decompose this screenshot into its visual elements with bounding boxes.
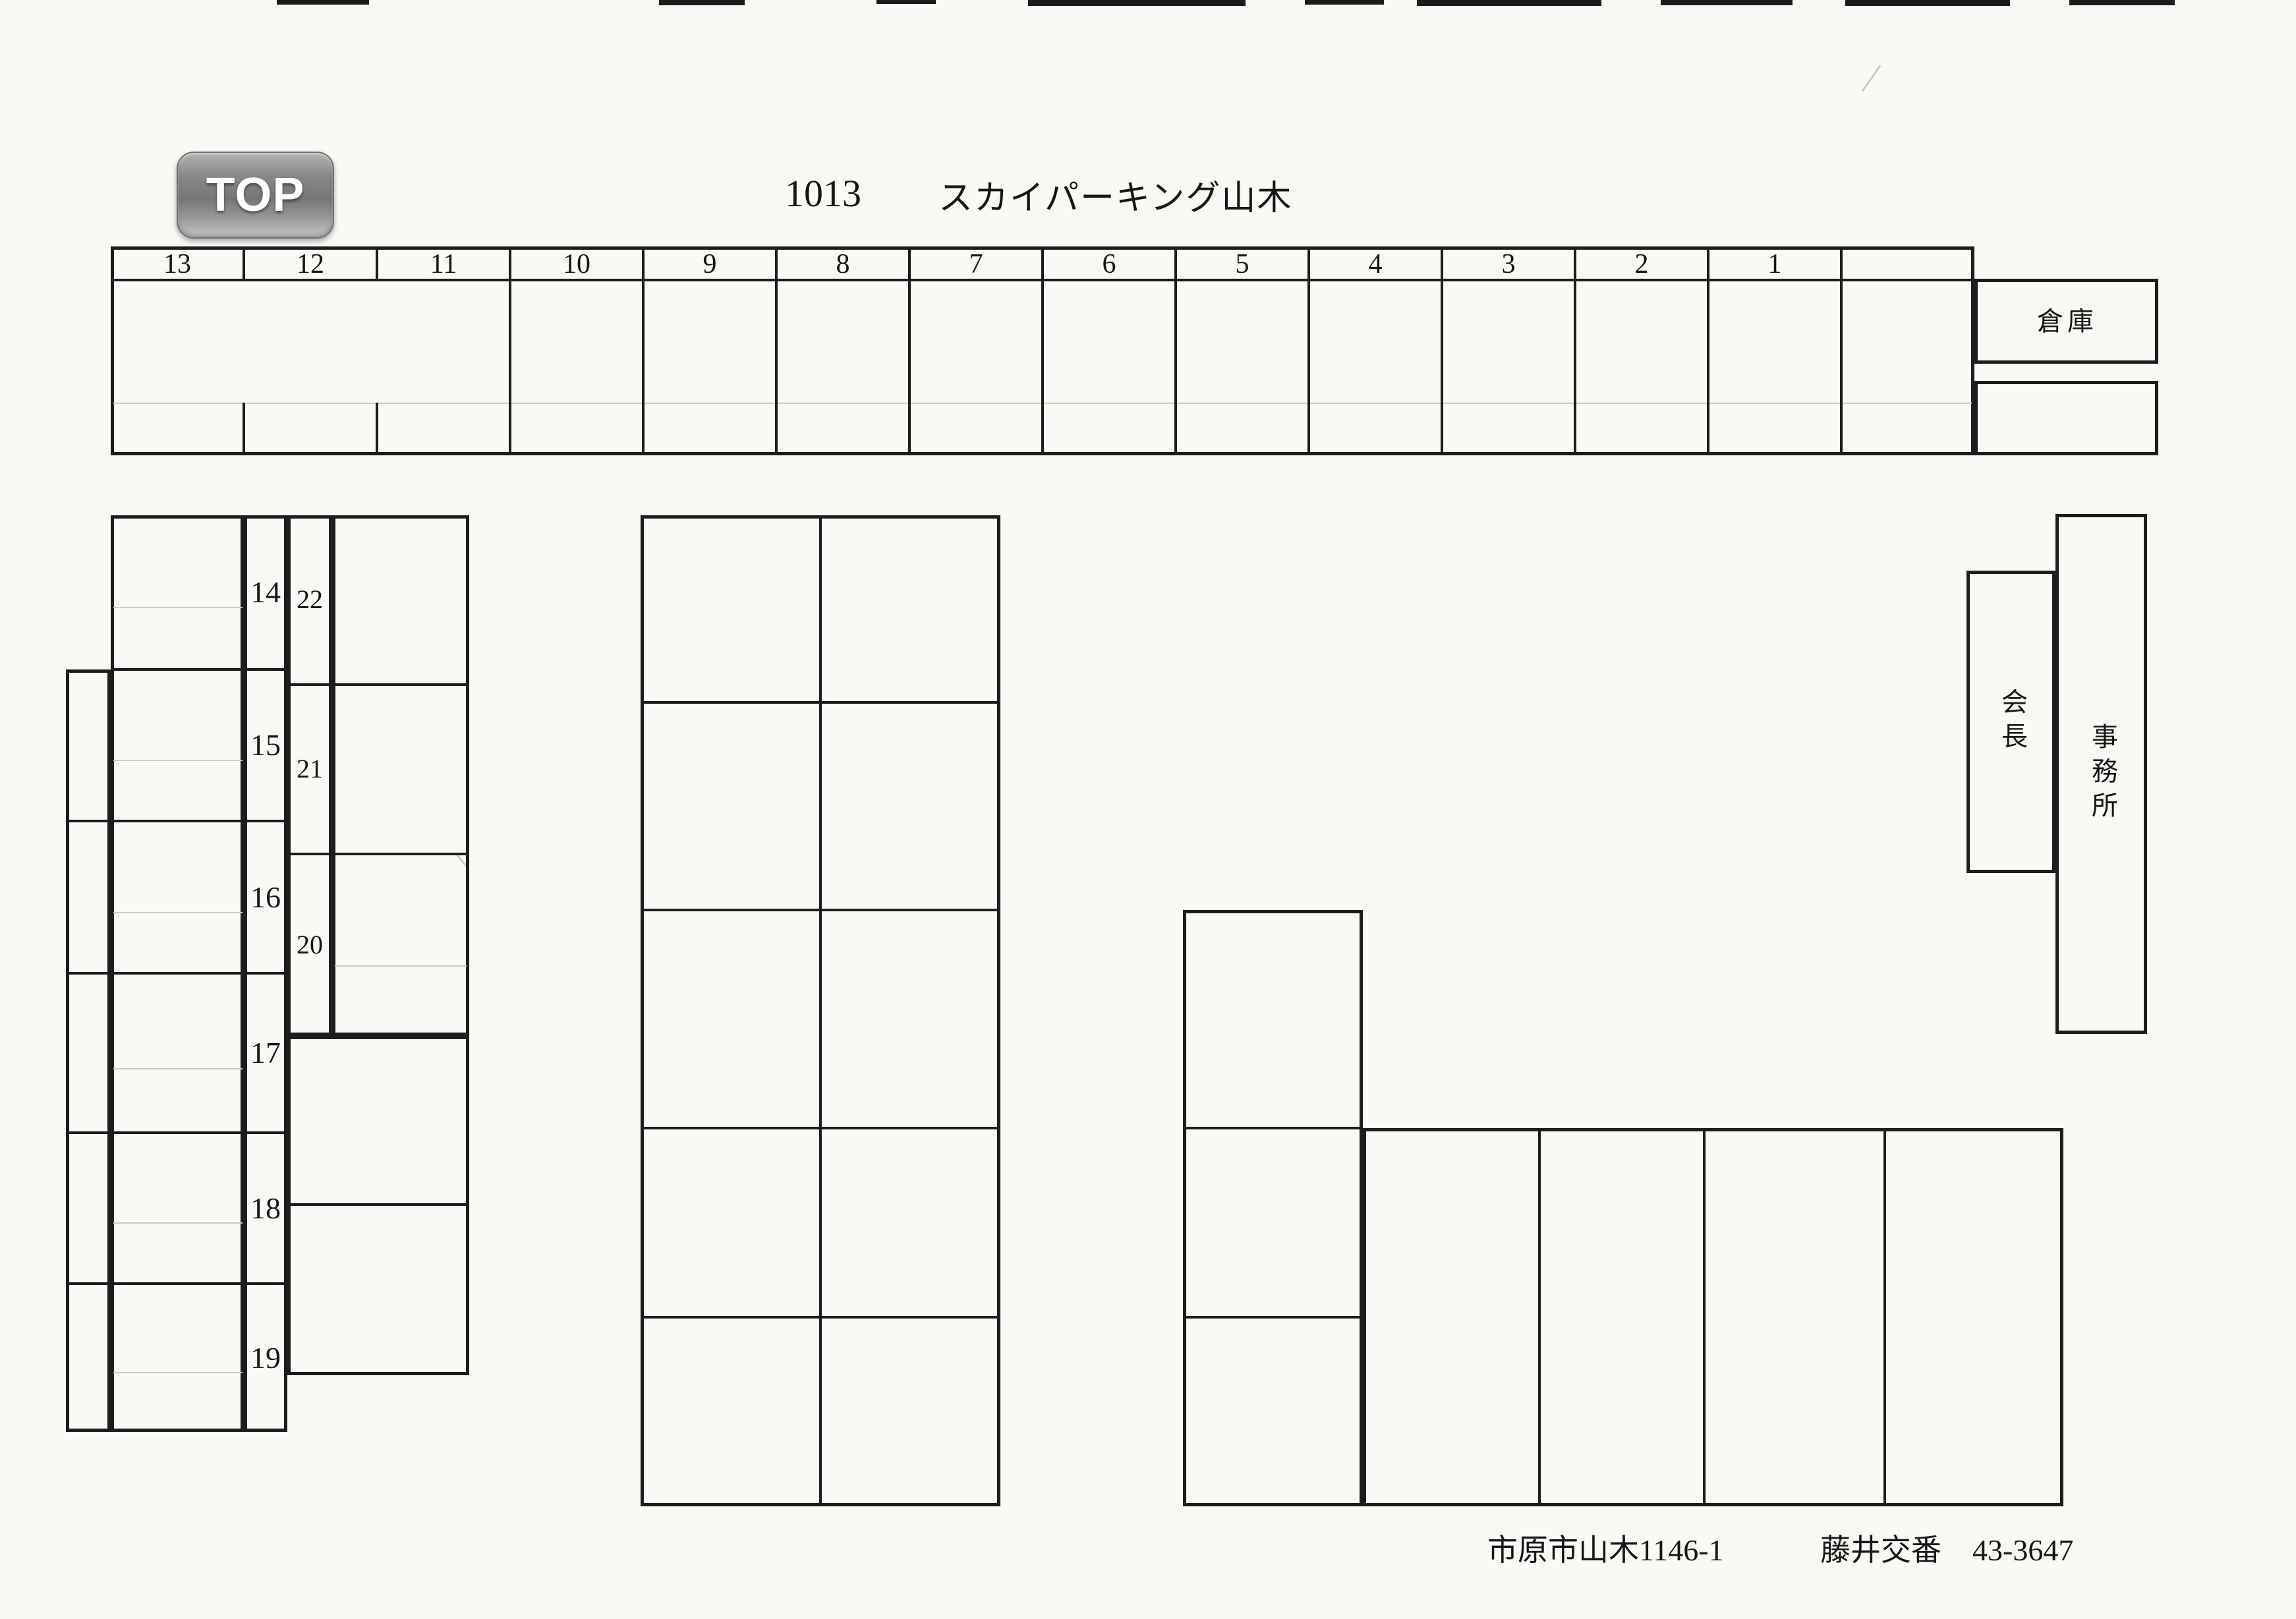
grid-line: [376, 403, 378, 455]
scan-smudge: [1862, 65, 1881, 92]
stall-number-1: 1: [1768, 250, 1782, 278]
stall-guide-line: [113, 1372, 243, 1373]
stall-number-16: 16: [250, 882, 281, 913]
scan-artifact: [1028, 0, 1246, 6]
grid-line: [819, 515, 822, 1506]
scan-artifact: [876, 0, 936, 4]
scan-artifact: [1305, 0, 1384, 5]
grid-line: [287, 683, 469, 686]
parking-lot-name: スカイパーキング山木: [938, 170, 1292, 219]
scan-artifact: [2069, 0, 2175, 5]
bottom-left-column: [1183, 910, 1363, 1506]
grid-line: [641, 701, 1000, 704]
stall-number-12: 12: [297, 250, 324, 278]
grid-line: [1174, 246, 1177, 455]
warehouse-annex-box: [1974, 381, 2158, 455]
grid-line: [1183, 1316, 1363, 1319]
footer-phone: 43-3647: [1972, 1535, 2073, 1566]
parking-lot-code: 1013: [785, 171, 861, 215]
stall-number-9: 9: [703, 250, 717, 278]
grid-line: [1307, 246, 1310, 455]
stall-number-10: 10: [563, 250, 590, 278]
stall-number-14: 14: [250, 577, 281, 608]
grid-line: [66, 972, 287, 975]
grid-line: [1538, 1128, 1541, 1506]
footer-address: 市原市山木1146-1: [1487, 1535, 1724, 1566]
grid-line: [111, 668, 287, 671]
stall-number-22: 22: [297, 586, 323, 613]
chairman-label: 会長: [1999, 688, 2025, 756]
grid-line: [775, 246, 778, 455]
stall-number-8: 8: [836, 250, 850, 278]
top-button[interactable]: TOP: [177, 152, 334, 239]
scan-artifact: [1845, 0, 2010, 6]
scan-artifact: [1661, 0, 1793, 5]
stall-number-18: 18: [250, 1193, 281, 1224]
stall-guide-line: [113, 607, 243, 608]
top-button-label: TOP: [206, 168, 305, 222]
stall-number-15: 15: [250, 730, 281, 760]
grid-line: [641, 1127, 1000, 1129]
grid-line: [509, 246, 511, 455]
grid-line: [1183, 1127, 1363, 1129]
grid-line: [66, 820, 287, 822]
grid-line: [641, 909, 1000, 911]
grid-line: [66, 1131, 287, 1134]
grid-line: [243, 403, 245, 455]
bottom-right-row: [1363, 1128, 2063, 1506]
scan-artifact: [277, 0, 369, 5]
grid-line: [66, 1282, 287, 1285]
grid-line: [1840, 246, 1843, 455]
scan-artifact: [1417, 0, 1601, 6]
grid-line: [641, 1316, 1000, 1319]
grid-line: [1707, 246, 1709, 455]
stall-number-6: 6: [1103, 250, 1116, 278]
parking-map-sheet: TOP 1013 スカイパーキング山木 13 12 11 10 9 8 7 6 …: [0, 0, 2296, 1619]
grid-line: [1883, 1128, 1886, 1506]
grid-line: [287, 853, 469, 855]
stall-guide-line: [335, 965, 467, 967]
office-label: 事務所: [2089, 723, 2115, 826]
grid-line: [908, 246, 911, 455]
left-edge-column: [66, 669, 111, 1432]
stall-number-17: 17: [250, 1038, 281, 1068]
stall-number-7: 7: [969, 250, 983, 278]
warehouse-label: 倉庫: [2037, 308, 2098, 335]
side-stall-column: [332, 515, 469, 1036]
stall-number-5: 5: [1236, 250, 1249, 278]
stall-number-20: 20: [297, 932, 323, 958]
stall-guide-line: [113, 760, 243, 761]
stall-number-3: 3: [1502, 250, 1516, 278]
footer-police-box: 藤井交番: [1820, 1535, 1941, 1566]
stall-number-11: 11: [430, 250, 457, 278]
stall-number-19: 19: [250, 1343, 281, 1373]
grid-line: [243, 246, 245, 281]
grid-line: [1703, 1128, 1706, 1506]
stall-guide-line: [113, 912, 243, 913]
stall-number-2: 2: [1635, 250, 1649, 278]
stall-number-4: 4: [1369, 250, 1383, 278]
grid-line: [287, 1203, 469, 1206]
stall-guide-line: [113, 1222, 243, 1224]
grid-line: [1041, 246, 1044, 455]
grid-line: [1574, 246, 1576, 455]
scan-artifact: [659, 0, 745, 5]
stall-number-13: 13: [163, 250, 191, 278]
grid-line: [376, 246, 378, 281]
grid-line: [642, 246, 645, 455]
grid-line: [1441, 246, 1443, 455]
stall-number-21: 21: [297, 756, 323, 782]
stall-guide-line: [113, 1068, 243, 1069]
